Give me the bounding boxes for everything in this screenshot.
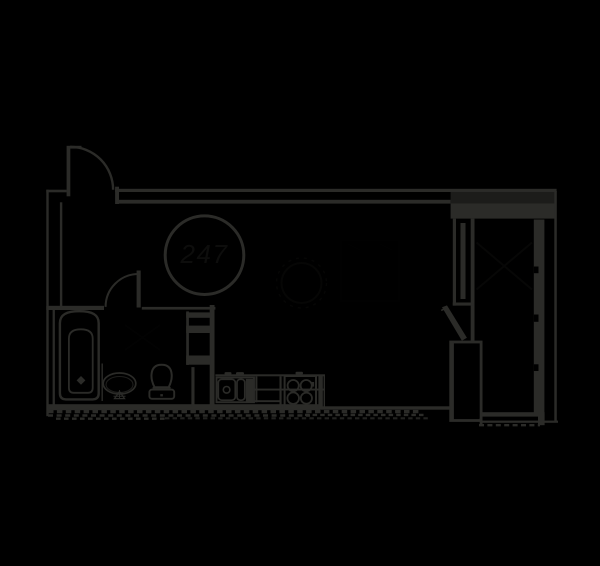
- svg-text:247: 247: [180, 239, 229, 269]
